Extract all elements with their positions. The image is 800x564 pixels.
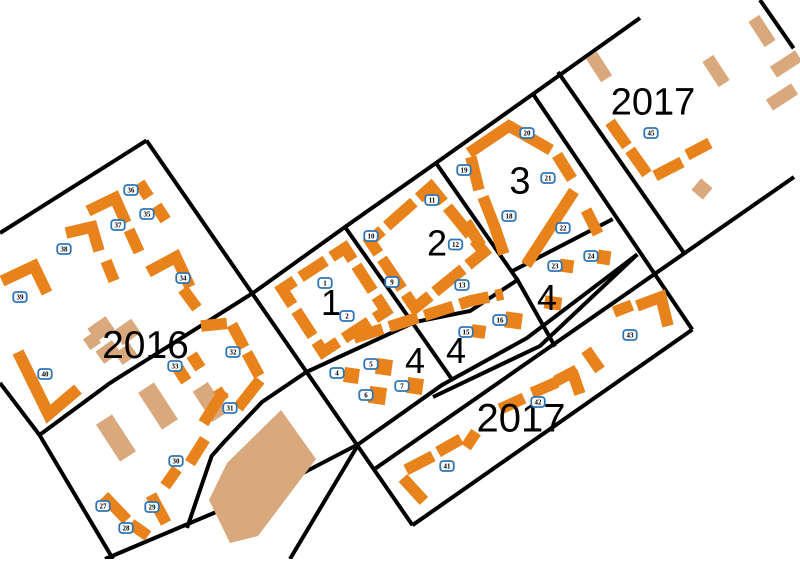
svg-text:36: 36	[128, 187, 136, 195]
svg-text:33: 33	[172, 363, 180, 371]
svg-text:27: 27	[100, 503, 108, 511]
svg-text:19: 19	[461, 167, 469, 175]
svg-text:15: 15	[463, 329, 471, 337]
svg-text:3: 3	[509, 161, 530, 203]
svg-text:11: 11	[429, 197, 436, 205]
svg-text:2: 2	[427, 223, 447, 264]
svg-text:31: 31	[227, 405, 235, 413]
svg-text:16: 16	[497, 317, 505, 325]
svg-text:2017: 2017	[611, 82, 696, 124]
svg-text:45: 45	[648, 130, 656, 138]
svg-text:29: 29	[149, 504, 157, 512]
svg-text:2017: 2017	[477, 396, 566, 440]
svg-text:20: 20	[524, 130, 532, 138]
svg-text:23: 23	[552, 263, 560, 271]
svg-text:38: 38	[61, 246, 69, 254]
svg-text:28: 28	[123, 525, 131, 533]
svg-text:35: 35	[144, 211, 152, 219]
svg-text:43: 43	[627, 332, 635, 340]
svg-text:22: 22	[560, 225, 568, 233]
svg-text:24: 24	[588, 253, 596, 261]
svg-text:4: 4	[405, 340, 425, 381]
svg-text:18: 18	[506, 213, 514, 221]
svg-text:1: 1	[323, 280, 327, 288]
svg-text:4: 4	[537, 277, 557, 318]
svg-text:6: 6	[364, 392, 368, 400]
svg-text:13: 13	[459, 282, 467, 290]
svg-text:10: 10	[368, 233, 376, 241]
svg-text:21: 21	[545, 175, 553, 183]
svg-text:42: 42	[535, 399, 543, 407]
svg-text:39: 39	[17, 294, 25, 302]
svg-text:30: 30	[173, 458, 181, 466]
svg-text:5: 5	[369, 361, 373, 369]
svg-text:34: 34	[180, 275, 188, 283]
svg-text:40: 40	[42, 371, 50, 379]
svg-text:41: 41	[444, 463, 452, 471]
svg-text:32: 32	[230, 349, 238, 357]
svg-text:4: 4	[335, 370, 339, 378]
svg-text:37: 37	[115, 222, 123, 230]
svg-text:2: 2	[345, 313, 349, 321]
svg-text:12: 12	[452, 241, 460, 249]
svg-text:7: 7	[400, 383, 404, 391]
svg-text:9: 9	[390, 279, 394, 287]
